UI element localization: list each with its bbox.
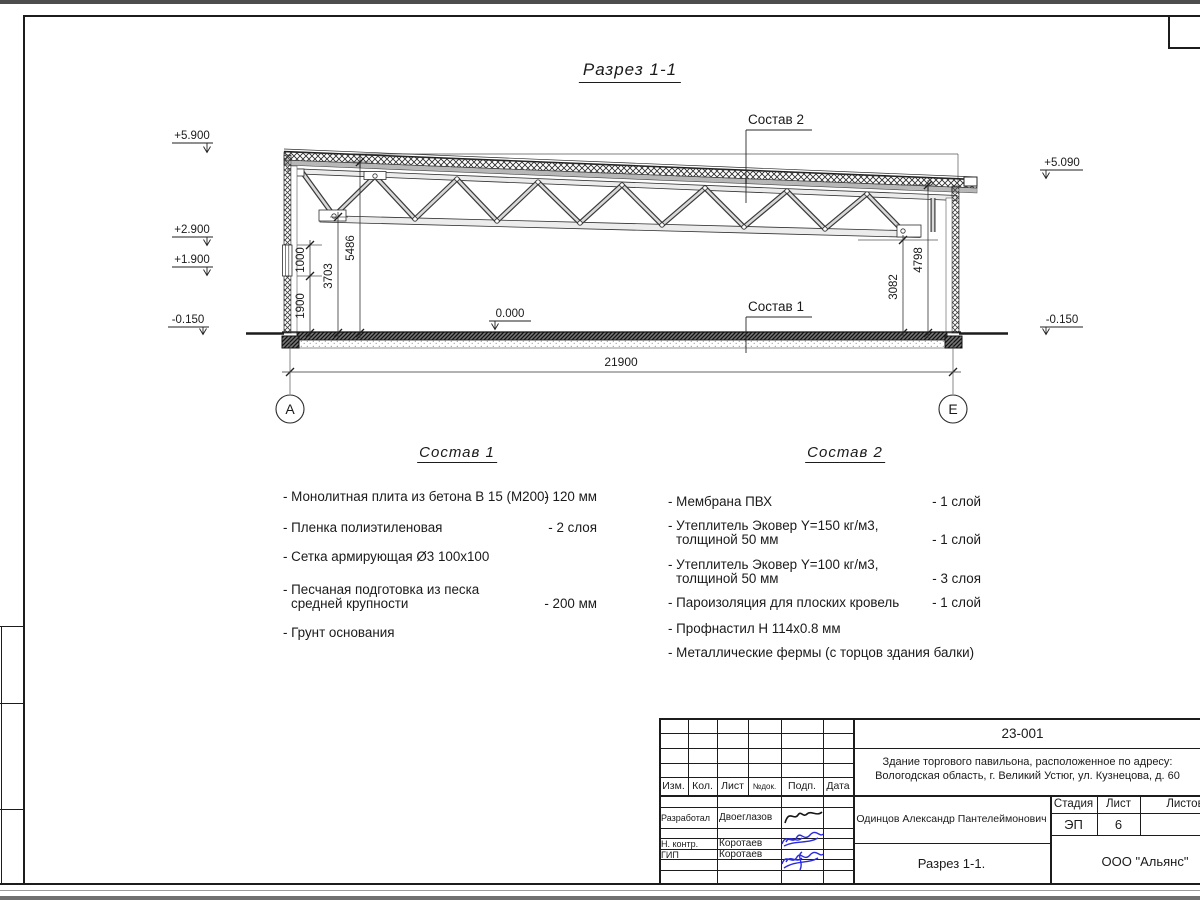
list-item: - Пленка полиэтиленовая: [283, 520, 442, 535]
margin-box-line3: [0, 809, 23, 810]
frame-bottom: [0, 883, 1200, 885]
list-item-value: - 3 слоя: [932, 571, 981, 586]
list-item: - Утеплитель Эковер Y=100 кг/м3,: [668, 557, 878, 572]
margin-box-line1: [0, 626, 23, 627]
sheet-label: Лист: [1097, 796, 1140, 812]
list-item-value: - 1 слой: [932, 595, 981, 610]
sand-layer: [299, 340, 945, 348]
name-korotaev-2: Коротаев: [719, 849, 781, 860]
list-item: - Сетка армирующая Ø3 100х100: [283, 549, 489, 564]
doc-number: 23-001: [855, 720, 1190, 746]
section-drawing: 1900 1000 3703 5486 3082 4798 21900 А Е …: [0, 0, 1200, 460]
signature-korotaev-blue: [776, 830, 826, 876]
list-item: - Утеплитель Эковер Y=150 кг/м3,: [668, 518, 878, 533]
col-header-list: Лист: [717, 778, 748, 794]
foundation-right: [945, 336, 962, 348]
elev-5090: +5.090: [1044, 157, 1080, 169]
elev-m015-left: -0.150: [172, 314, 205, 326]
col-header-podp: Подп.: [781, 778, 823, 794]
name-korotaev-1: Коротаев: [719, 838, 781, 849]
list-item: - Металлические фермы (с торцов здания б…: [668, 645, 974, 660]
project-name-line2: Вологодская область, г. Великий Устюг, у…: [855, 769, 1200, 783]
role-razrabotal: Разработал: [661, 808, 717, 827]
col-header-data: Дата: [823, 778, 853, 794]
list-item: - Монолитная плита из бетона В 15 (М200): [283, 489, 549, 504]
list-item: - Профнастил Н 114х0.8 мм: [668, 621, 841, 636]
dim-1900: 1900: [295, 293, 307, 319]
elev-zero: 0.000: [496, 308, 525, 320]
roof-right-end-cap: [964, 177, 977, 186]
sheets-label: Листов: [1140, 796, 1200, 812]
company-name: ООО "Альянс": [1050, 840, 1200, 882]
floor-slab: [297, 332, 947, 340]
axis-markers: А Е: [276, 395, 967, 423]
span-dimension: 21900: [282, 342, 961, 394]
dim-4798: 4798: [913, 247, 925, 273]
list-item-value: - 200 мм: [544, 596, 597, 611]
sostav1-title: Состав 1: [417, 444, 497, 463]
list-item-value: - 1 слой: [932, 494, 981, 509]
list-item: толщиной 50 мм: [676, 571, 779, 586]
callout-leaders: [746, 130, 812, 353]
callout-sostav1: Состав 1: [748, 299, 804, 314]
list-item: - Мембрана ПВХ: [668, 494, 772, 509]
sheets-total: [1140, 814, 1200, 834]
dim-3703: 3703: [323, 263, 335, 289]
sheet-number: 6: [1097, 814, 1140, 834]
list-item-value: - 120 мм: [544, 489, 597, 504]
elev-5900: +5.900: [174, 130, 210, 142]
axis-letter-a: А: [285, 401, 295, 417]
signature-razrabotal: [782, 806, 824, 828]
dim-5486: 5486: [345, 235, 357, 261]
list-item: средней крупности: [291, 596, 408, 611]
callout-sostav2: Состав 2: [748, 112, 804, 127]
elev-m015-right: -0.150: [1046, 314, 1079, 326]
page-bottom-edge: [0, 890, 1200, 891]
sostav2-title: Состав 2: [805, 444, 885, 463]
foundation-left: [282, 336, 299, 348]
author-name: Одинцов Александр Пантелеймонович: [855, 797, 1048, 841]
list-item-value: - 2 слоя: [548, 520, 597, 535]
role-gip: ГИП: [661, 849, 717, 860]
list-item: - Песчаная подготовка из песка: [283, 582, 479, 597]
dim-1000: 1000: [295, 247, 307, 273]
list-item-value: - 1 слой: [932, 532, 981, 547]
name-dvoeglazov: Двоеглазов: [719, 808, 781, 827]
elev-1900: +1.900: [174, 254, 210, 266]
col-header-izm: Изм.: [659, 778, 688, 794]
axis-letter-e: Е: [948, 401, 957, 417]
margin-box-edge: [1, 626, 2, 884]
left-wall-window: [283, 245, 293, 276]
margin-box-line2: [0, 703, 23, 704]
stage-label: Стадия: [1050, 796, 1097, 812]
drawing-sheet: { "sheet": { "view_title": "Разрез 1-1",…: [0, 0, 1200, 900]
list-item: - Грунт основания: [283, 625, 394, 640]
role-nkontr: Н. контр.: [661, 838, 717, 849]
project-name-line1: Здание торгового павильона, расположенно…: [855, 755, 1200, 769]
col-header-ndok: №док.: [748, 778, 781, 794]
list-item: толщиной 50 мм: [676, 532, 779, 547]
stage-value: ЭП: [1050, 814, 1097, 834]
screen-bottom-strip: [0, 896, 1200, 900]
col-header-kol: Кол.: [688, 778, 717, 794]
list-item: - Пароизоляция для плоских кровель: [668, 595, 899, 610]
right-wall: [946, 186, 959, 333]
dim-21900: 21900: [604, 355, 638, 369]
elev-2900: +2.900: [174, 224, 210, 236]
dim-3082: 3082: [888, 274, 900, 300]
sheet-caption: Разрез 1-1.: [855, 845, 1048, 882]
